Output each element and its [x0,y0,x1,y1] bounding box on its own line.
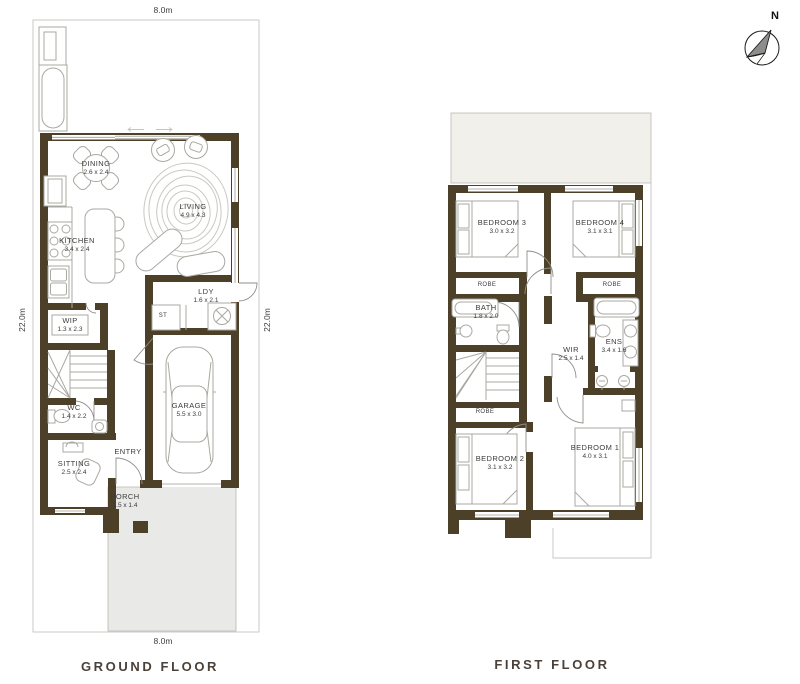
room-label-bedroom1: BEDROOM 1 4.0 x 3.1 [571,443,620,461]
porch-size: 1.5 x 1.4 [113,502,138,510]
floorplan-canvas: 8.0m 8.0m 22.0m 22.0m DINING 2.6 x 2.4 L… [0,0,800,684]
dining-name: DINING [82,159,111,169]
wc-basin-icon [92,420,107,433]
room-label-bedroom4: BEDROOM 4 3.1 x 3.1 [576,218,625,236]
bedroom3-name: BEDROOM 3 [478,218,527,228]
room-label-kitchen: KITCHEN 3.4 x 2.4 [59,236,95,254]
dining-size: 2.6 x 2.4 [84,169,109,177]
room-label-garage: GARAGE 5.5 x 3.0 [172,401,207,419]
dim-bottom: 8.0m [154,636,173,646]
hot-water-unit-icon [39,27,66,65]
wc-name: WC [67,403,80,413]
laundry-tub-icon [208,303,236,330]
fridge-icon [44,176,66,206]
bedroom2-size: 3.1 x 3.2 [488,464,513,472]
north-compass-icon [745,30,779,65]
robe-name: ROBE [603,282,622,290]
room-label-wir: WIR 2.5 x 1.4 [559,345,584,363]
bedroom2-name: BEDROOM 2 [476,454,525,464]
wir-name: WIR [563,345,579,355]
entry-name: ENTRY [114,447,141,457]
water-tank-icon [39,65,67,131]
robe-name: ROBE [478,282,497,290]
porch-name: PORCH [110,492,139,502]
living-size: 4.9 x 4.3 [181,212,206,220]
room-label-sitting: SITTING 2.5 x 2.4 [58,459,90,477]
bedroom1-size: 4.0 x 3.1 [583,453,608,461]
robe-name: ROBE [476,409,495,417]
first-floor-title: FIRST FLOOR [494,657,609,672]
garage-name: GARAGE [172,401,207,411]
room-label-dining: DINING 2.6 x 2.4 [82,159,111,177]
stairs-first [456,352,519,400]
twin-basins-icon [597,376,630,391]
room-label-bedroom3: BEDROOM 3 3.0 x 3.2 [478,218,527,236]
ens-size: 3.4 x 1.6 [602,347,627,355]
dim-left: 22.0m [17,308,27,332]
first-floor-plan [448,113,651,558]
basin-icon-bath [456,325,472,337]
robe-label-bedroom4: ROBE [603,282,622,290]
bath-size: 1.8 x 2.0 [474,313,499,321]
bathtub-icon-ens [594,298,639,317]
room-label-ens: ENS 3.4 x 1.6 [602,337,627,355]
floorplan-graphics [0,0,800,684]
room-label-porch: PORCH 1.5 x 1.4 [110,492,139,510]
kitchen-size: 3.4 x 2.4 [65,246,90,254]
dim-right: 22.0m [262,308,272,332]
room-label-bath: BATH 1.8 x 2.0 [474,303,499,321]
laundry-door-swing [239,283,257,301]
robe-label-bedroom3: ROBE [478,282,497,290]
wir-size: 2.5 x 1.4 [559,355,584,363]
wip-name: WIP [62,316,77,326]
kitchen-sink-icon [48,266,69,298]
stairs-ground [48,350,107,398]
entry-door-swing [116,458,142,484]
bedroom1-door-swing [557,395,583,423]
wip-door-swing [86,303,96,313]
garage-size: 5.5 x 3.0 [177,411,202,419]
room-label-wip: WIP 1.3 x 2.3 [58,316,83,334]
toilet-icon-bath [497,325,509,344]
living-name: LIVING [180,202,207,212]
room-label-entry: ENTRY [114,447,141,457]
wc-size: 1.4 x 2.2 [62,413,87,421]
dim-top: 8.0m [154,5,173,15]
wip-size: 1.3 x 2.3 [58,326,83,334]
roof-area [451,113,651,183]
ldy-size: 1.6 x 2.1 [194,297,219,305]
st-name: ST [159,313,167,321]
room-label-st: ST [159,313,167,321]
sitting-size: 2.5 x 2.4 [62,469,87,477]
north-label: N [771,10,779,22]
ground-floor-title: GROUND FLOOR [81,659,219,674]
bedroom4-name: BEDROOM 4 [576,218,625,228]
robe-label-bedroom2: ROBE [476,409,495,417]
room-label-bedroom2: BEDROOM 2 3.1 x 3.2 [476,454,525,472]
room-label-living: LIVING 4.9 x 4.3 [180,202,207,220]
bedroom4-size: 3.1 x 3.1 [588,228,613,236]
bedroom3-size: 3.0 x 3.2 [490,228,515,236]
ldy-name: LDY [198,287,214,297]
ens-name: ENS [606,337,623,347]
bedroom1-name: BEDROOM 1 [571,443,620,453]
sitting-name: SITTING [58,459,90,469]
room-label-ldy: LDY 1.6 x 2.1 [194,287,219,305]
toilet-icon-ens [590,325,610,337]
kitchen-name: KITCHEN [59,236,95,246]
room-label-wc: WC 1.4 x 2.2 [62,403,87,421]
bath-name: BATH [475,303,496,313]
